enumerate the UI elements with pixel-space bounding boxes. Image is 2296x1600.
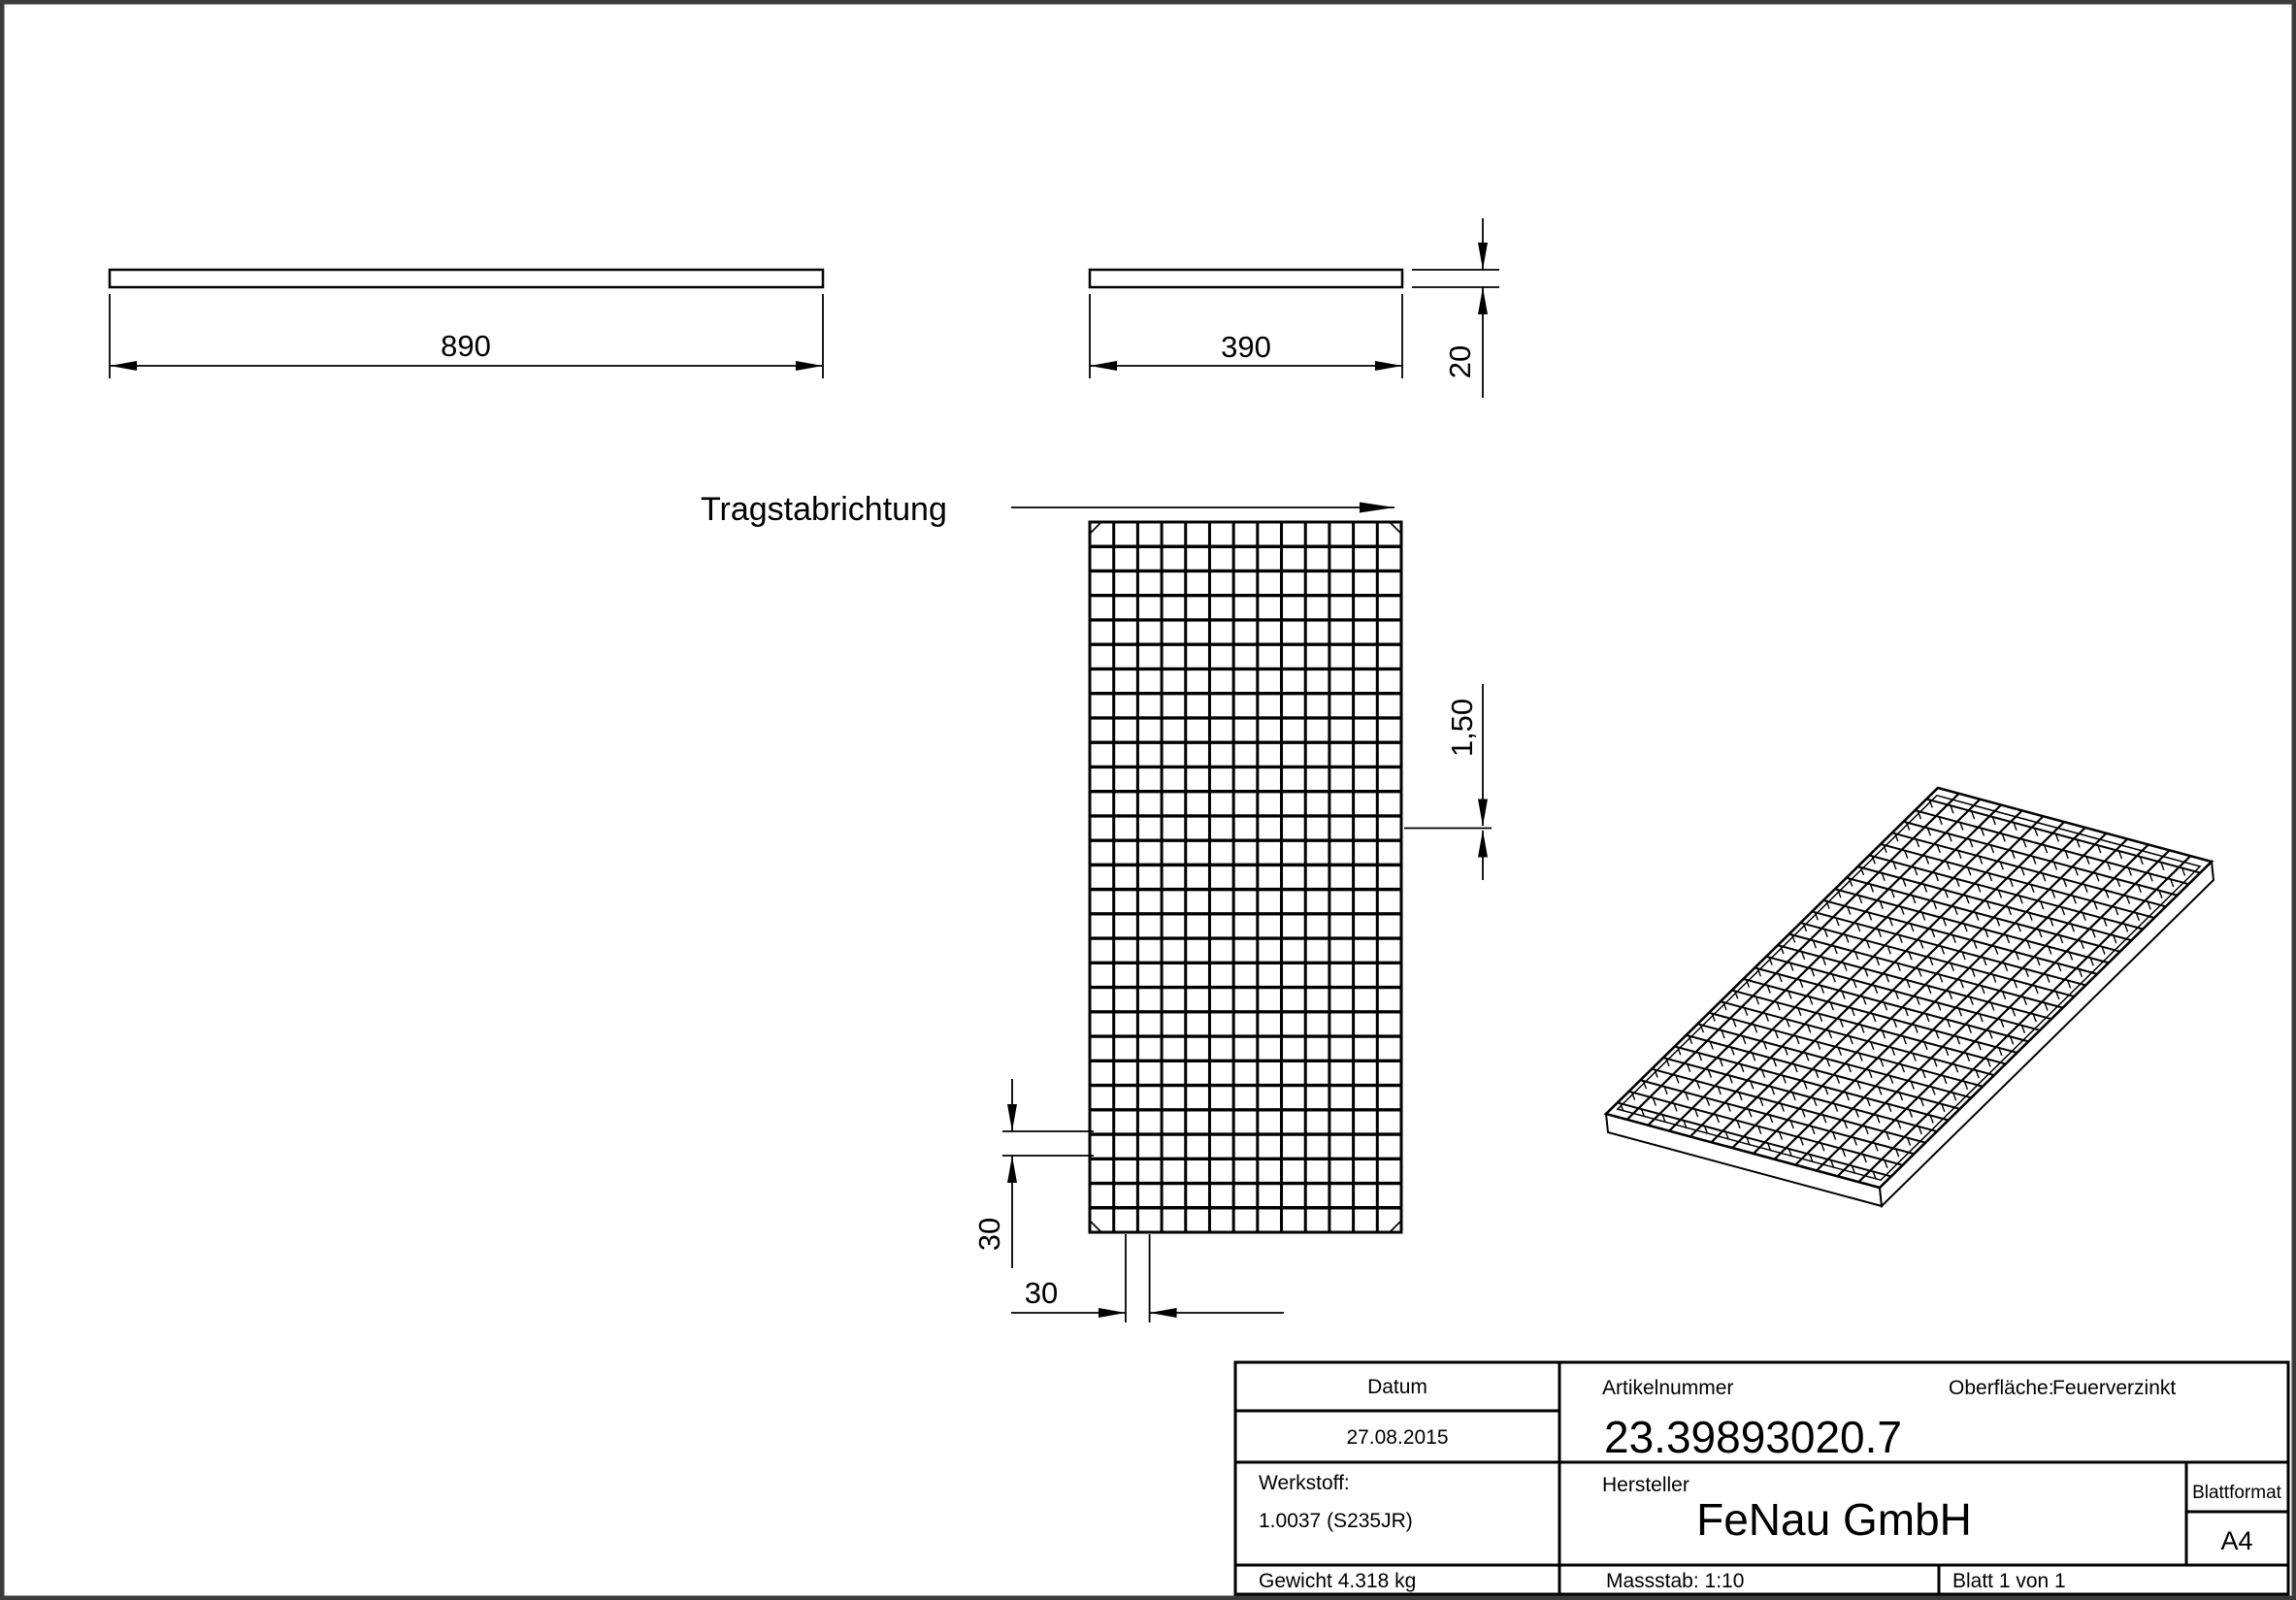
dim-390-text: 390 — [1221, 330, 1271, 364]
dim-30-vertical-text: 30 — [972, 1218, 1006, 1251]
side-bar-short — [1090, 270, 1402, 287]
blatt-text: Blatt 1 von 1 — [1952, 1570, 2066, 1592]
dim-1-50-text: 1,50 — [1445, 699, 1479, 757]
werkstoff-label: Werkstoff: — [1259, 1472, 1350, 1494]
dim-20-text: 20 — [1443, 345, 1477, 378]
tragstabrichtung-label: Tragstabrichtung — [701, 491, 947, 528]
datum-label: Datum — [1367, 1376, 1427, 1398]
side-bar-long — [110, 270, 823, 287]
artikelnummer-label: Artikelnummer — [1602, 1377, 1733, 1399]
gewicht-text: Gewicht 4.318 kg — [1259, 1570, 1416, 1592]
side-view-short: 390 20 — [1090, 218, 1499, 398]
drawing-sheet: 890 390 20 Tragstabrichtung — [0, 0, 2296, 1600]
isometric-view — [1606, 788, 2214, 1206]
artikelnummer-value: 23.39893020.7 — [1604, 1412, 1902, 1462]
front-view: Tragstabrichtung 1,50 30 — [701, 491, 1492, 1322]
hersteller-label: Hersteller — [1602, 1474, 1689, 1496]
massstab-text: Massstab: 1:10 — [1606, 1570, 1744, 1592]
werkstoff-value: 1.0037 (S235JR) — [1259, 1510, 1413, 1532]
hersteller-value: FeNau GmbH — [1696, 1494, 1972, 1545]
blattformat-label: Blattformat — [2192, 1483, 2282, 1503]
oberflaeche-value: Feuerverzinkt — [2052, 1377, 2176, 1399]
dim-30-horizontal-text: 30 — [1025, 1276, 1058, 1310]
oberflaeche-label: Oberfläche: — [1949, 1377, 2054, 1399]
blattformat-value: A4 — [2220, 1526, 2252, 1555]
datum-value: 27.08.2015 — [1346, 1426, 1448, 1449]
technical-drawing: 890 390 20 Tragstabrichtung — [0, 0, 2296, 1600]
dim-890-text: 890 — [441, 329, 491, 363]
title-block: Datum 27.08.2015 Artikelnummer 23.398930… — [1235, 1362, 2288, 1594]
side-view-long: 890 — [110, 270, 823, 378]
